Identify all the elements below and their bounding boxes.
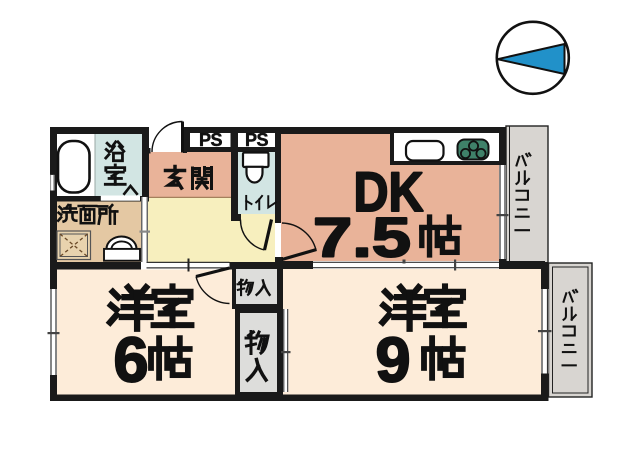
- svg-text:PS: PS: [245, 130, 269, 150]
- svg-text:6: 6: [113, 326, 148, 396]
- svg-text:PS: PS: [199, 130, 223, 150]
- svg-text:7.5: 7.5: [313, 206, 411, 269]
- svg-text:9: 9: [375, 326, 410, 396]
